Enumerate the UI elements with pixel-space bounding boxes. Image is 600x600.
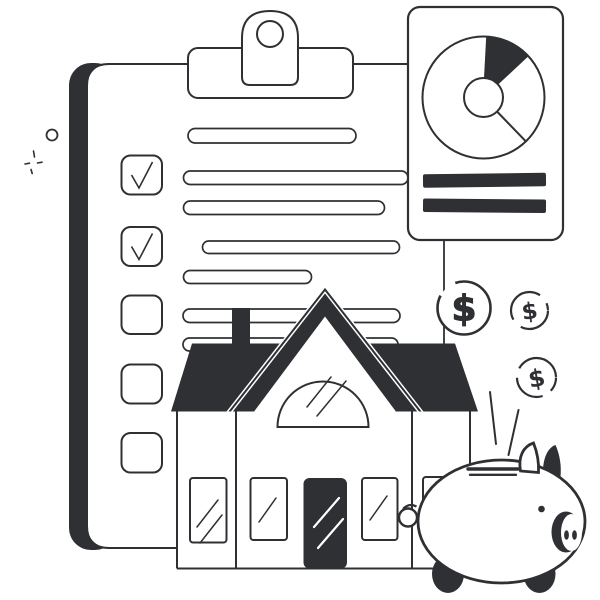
checkbox-5 [122,433,163,473]
coin-large: $ [438,282,491,335]
report-bar [423,173,546,188]
illustration-canvas: $ $ $ [0,0,600,600]
report-card [408,7,563,240]
pig-nostril [572,530,577,540]
sparkle-star-icon [25,151,42,174]
sparkle-circle-icon [47,130,58,141]
dollar-sign-icon: $ [451,289,476,330]
pig-nostril [564,530,569,540]
report-bar [423,198,546,213]
front-door [304,478,348,569]
text-line [184,171,409,185]
pig-snout [552,512,583,553]
checkbox-4 [122,365,163,404]
coin-drop-lines [490,392,519,455]
text-line [183,309,400,323]
chimney [232,308,250,346]
illustration-home-purchase: $ $ $ [0,0,600,600]
coin-small-bottom: $ [517,358,556,397]
pig-eye [538,506,545,513]
coin-small-top: $ [511,292,548,329]
checkbox-1 [122,156,163,195]
text-line [184,201,385,215]
clipboard-clip [188,11,353,98]
window-center-right [362,478,398,540]
donut-chart [423,37,545,159]
text-line [203,241,400,254]
text-line [188,129,356,144]
sparkle-decoration [25,130,58,174]
checkbox-3 [122,296,163,335]
clip-hole-icon [257,21,283,47]
checkbox-2 [122,227,163,266]
pig-ear-left [520,443,539,473]
pig-tail-icon [399,509,417,527]
text-line [184,271,312,284]
